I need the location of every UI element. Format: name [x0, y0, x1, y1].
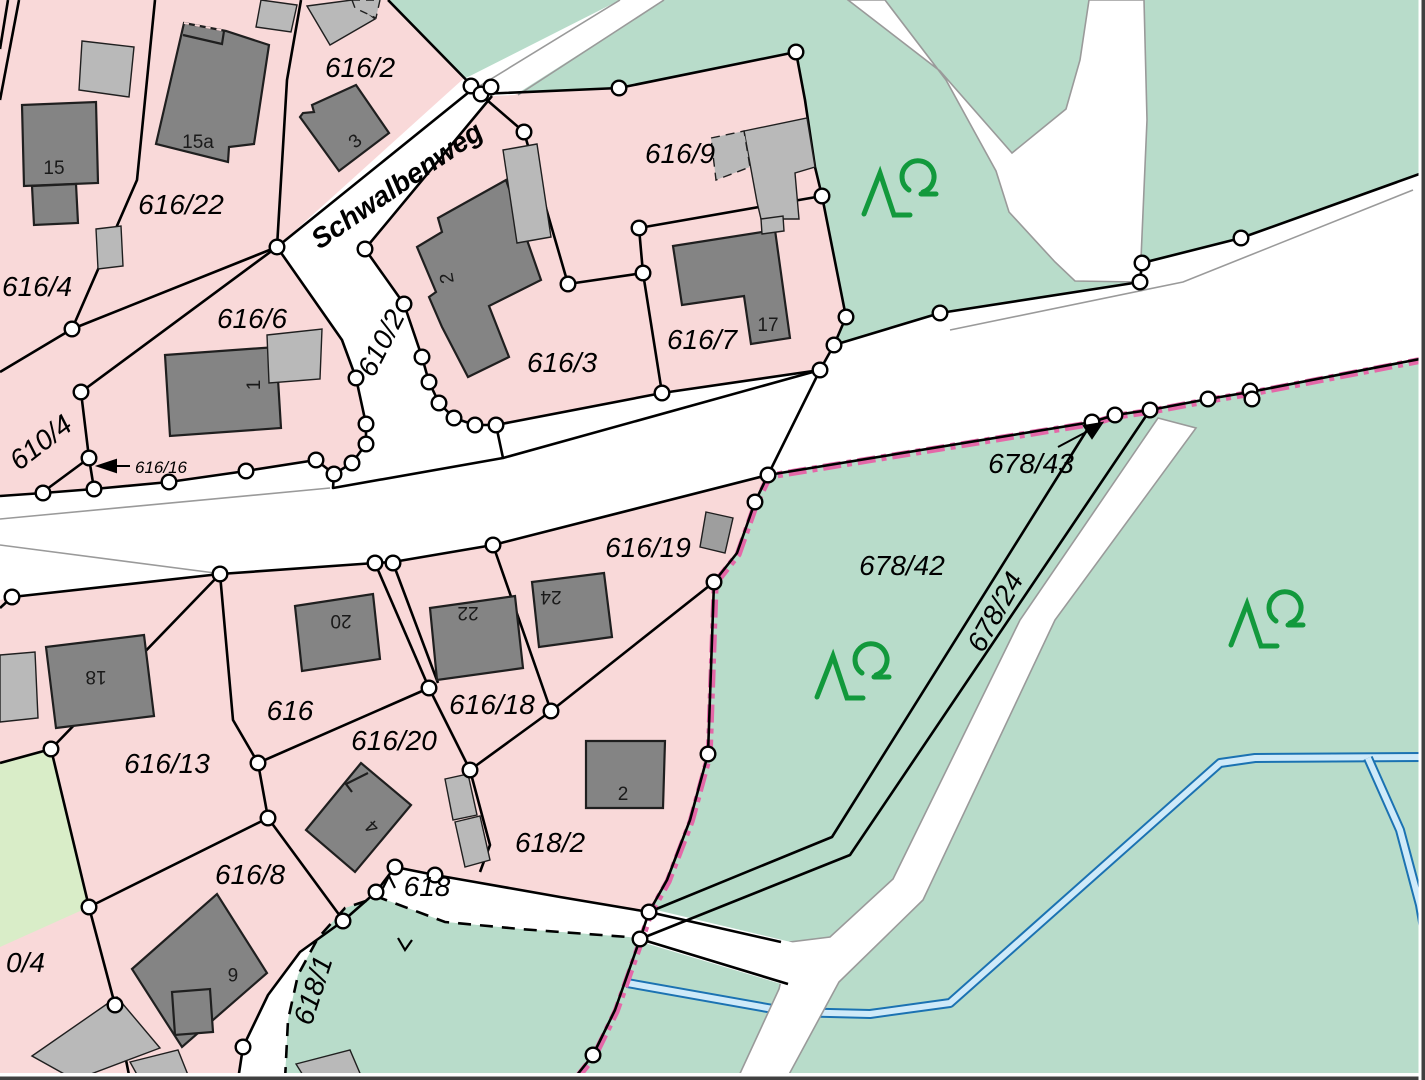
svg-text:15: 15 — [43, 158, 64, 179]
svg-text:616/9: 616/9 — [645, 138, 715, 169]
svg-text:18: 18 — [85, 666, 106, 687]
svg-text:616/22: 616/22 — [138, 189, 224, 220]
svg-text:15a: 15a — [182, 132, 214, 153]
svg-text:616: 616 — [267, 695, 314, 726]
svg-text:17: 17 — [757, 315, 778, 336]
svg-text:678/42: 678/42 — [859, 550, 945, 581]
svg-text:20: 20 — [330, 610, 351, 631]
svg-text:616/16: 616/16 — [135, 458, 188, 477]
svg-text:616/20: 616/20 — [351, 725, 437, 756]
svg-text:0/4: 0/4 — [6, 947, 45, 978]
svg-text:616/4: 616/4 — [2, 271, 72, 302]
svg-text:616/3: 616/3 — [527, 347, 597, 378]
svg-text:618: 618 — [404, 871, 451, 902]
svg-text:616/18: 616/18 — [449, 689, 535, 720]
svg-text:616/8: 616/8 — [215, 859, 285, 890]
svg-text:616/13: 616/13 — [124, 748, 210, 779]
svg-text:616/6: 616/6 — [217, 303, 287, 334]
svg-text:22: 22 — [457, 602, 478, 623]
svg-text:616/7: 616/7 — [667, 324, 738, 355]
svg-text:616/19: 616/19 — [605, 532, 691, 563]
svg-text:678/43: 678/43 — [988, 448, 1074, 479]
svg-text:6: 6 — [228, 963, 239, 984]
svg-text:618/2: 618/2 — [515, 827, 585, 858]
svg-text:1: 1 — [244, 380, 265, 391]
svg-text:616/2: 616/2 — [325, 52, 395, 83]
svg-text:24: 24 — [540, 586, 562, 607]
svg-text:2: 2 — [618, 784, 629, 805]
